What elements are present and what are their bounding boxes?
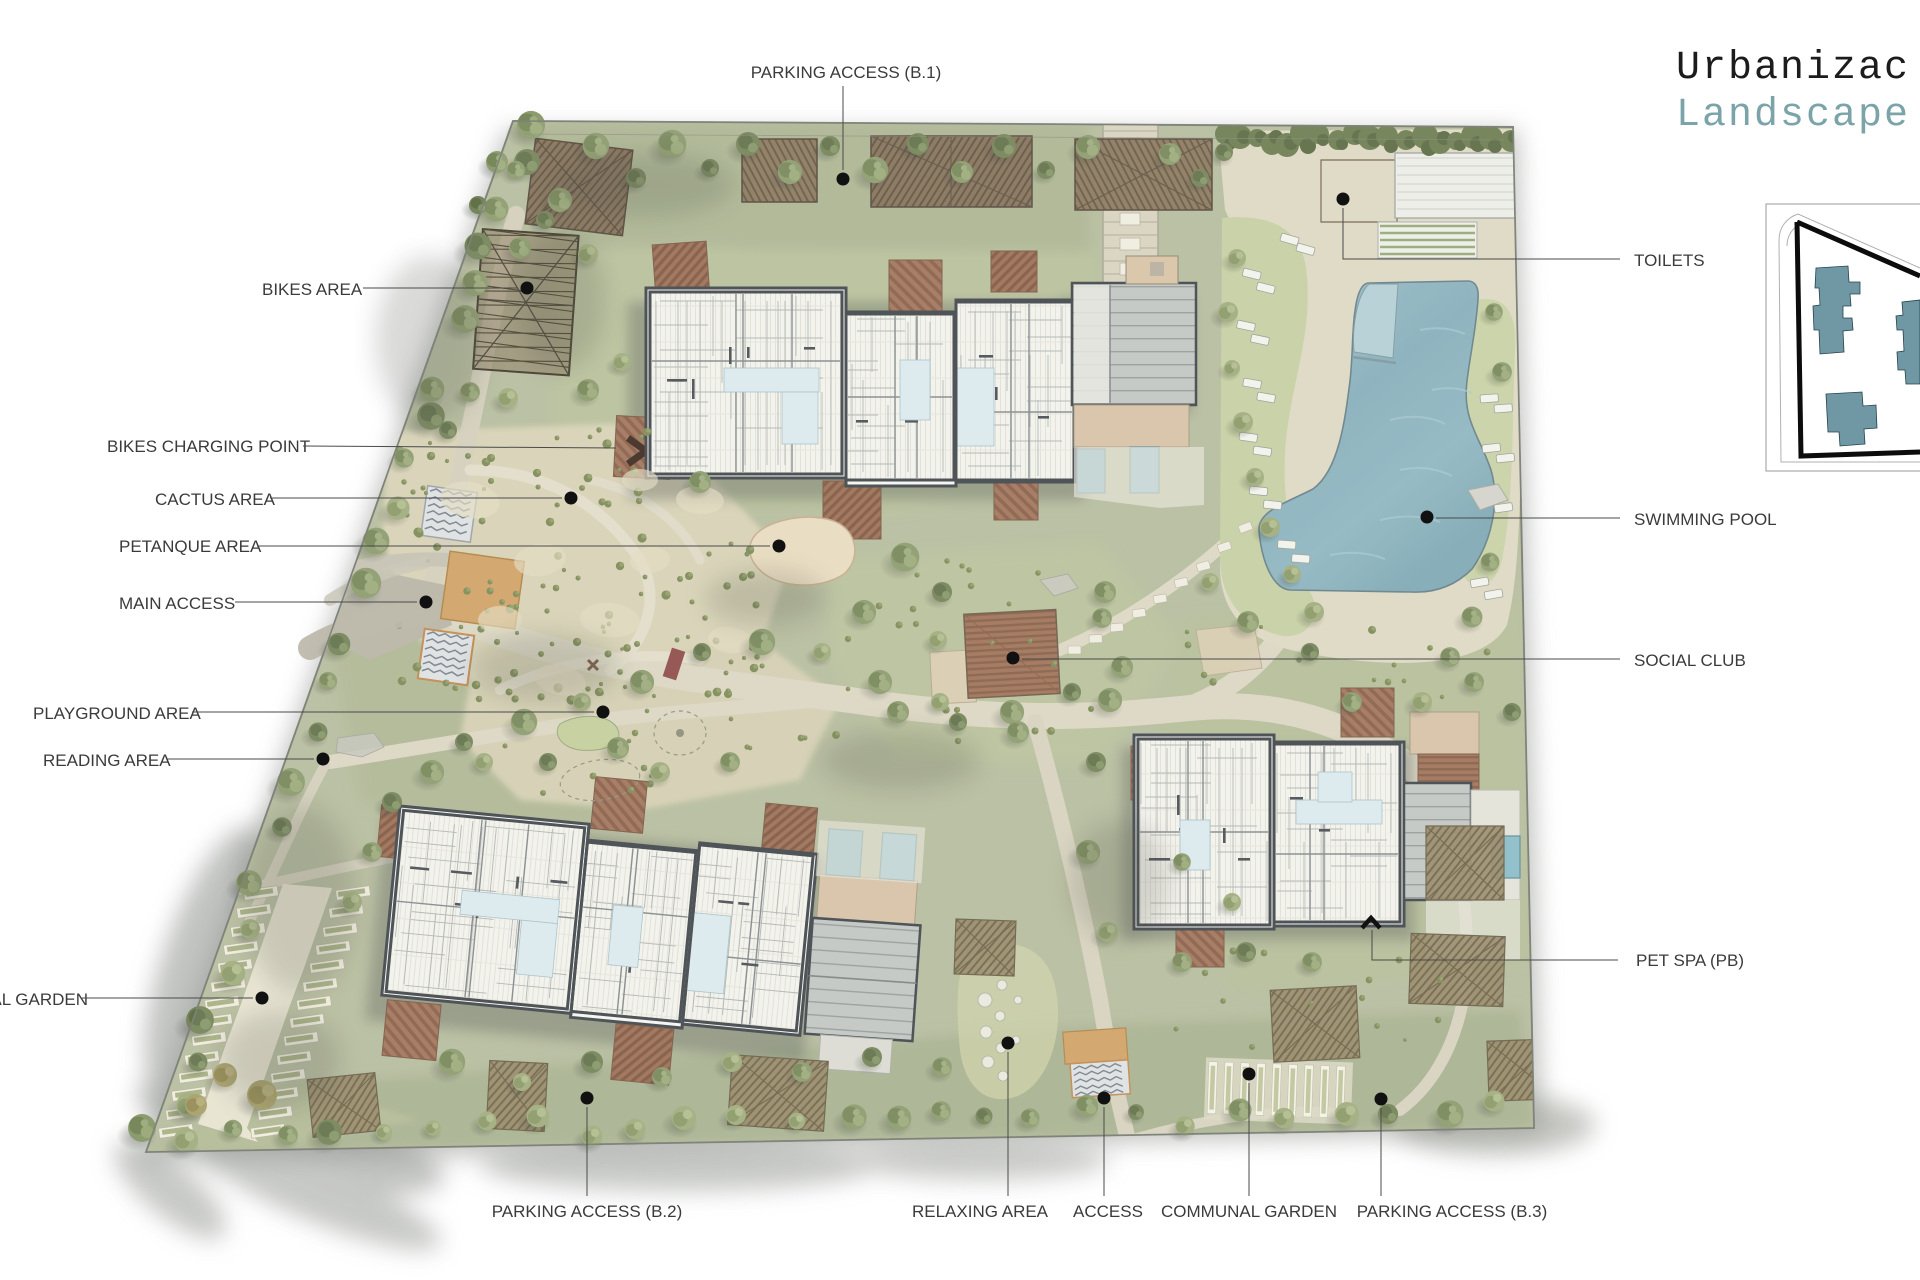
svg-text:PLAYGROUND AREA: PLAYGROUND AREA (33, 704, 202, 723)
svg-text:CACTUS AREA: CACTUS AREA (155, 490, 276, 509)
svg-text:PARKING ACCESS (B.1): PARKING ACCESS (B.1) (751, 63, 942, 82)
svg-text:Landscape: Landscape (1676, 93, 1910, 138)
svg-text:BIKES AREA: BIKES AREA (262, 280, 363, 299)
svg-text:PETANQUE AREA: PETANQUE AREA (119, 537, 262, 556)
svg-text:COMMUNAL GARDEN: COMMUNAL GARDEN (1161, 1202, 1337, 1221)
svg-text:TOILETS: TOILETS (1634, 251, 1705, 270)
svg-text:MAIN ACCESS: MAIN ACCESS (119, 594, 235, 613)
svg-text:RELAXING AREA: RELAXING AREA (912, 1202, 1049, 1221)
svg-text:BIKES CHARGING POINT: BIKES CHARGING POINT (107, 437, 310, 456)
svg-text:PARKING ACCESS (B.2): PARKING ACCESS (B.2) (492, 1202, 683, 1221)
svg-text:ACCESS: ACCESS (1073, 1202, 1143, 1221)
svg-text:PET SPA (PB): PET SPA (PB) (1636, 951, 1744, 970)
svg-text:Urbanizac: Urbanizac (1676, 46, 1910, 91)
svg-text:COMMUNAL GARDEN: COMMUNAL GARDEN (0, 990, 88, 1009)
svg-text:PARKING ACCESS (B.3): PARKING ACCESS (B.3) (1357, 1202, 1548, 1221)
svg-text:READING AREA: READING AREA (43, 751, 171, 770)
svg-text:SOCIAL CLUB: SOCIAL CLUB (1634, 651, 1746, 670)
svg-text:SWIMMING POOL: SWIMMING POOL (1634, 510, 1777, 529)
